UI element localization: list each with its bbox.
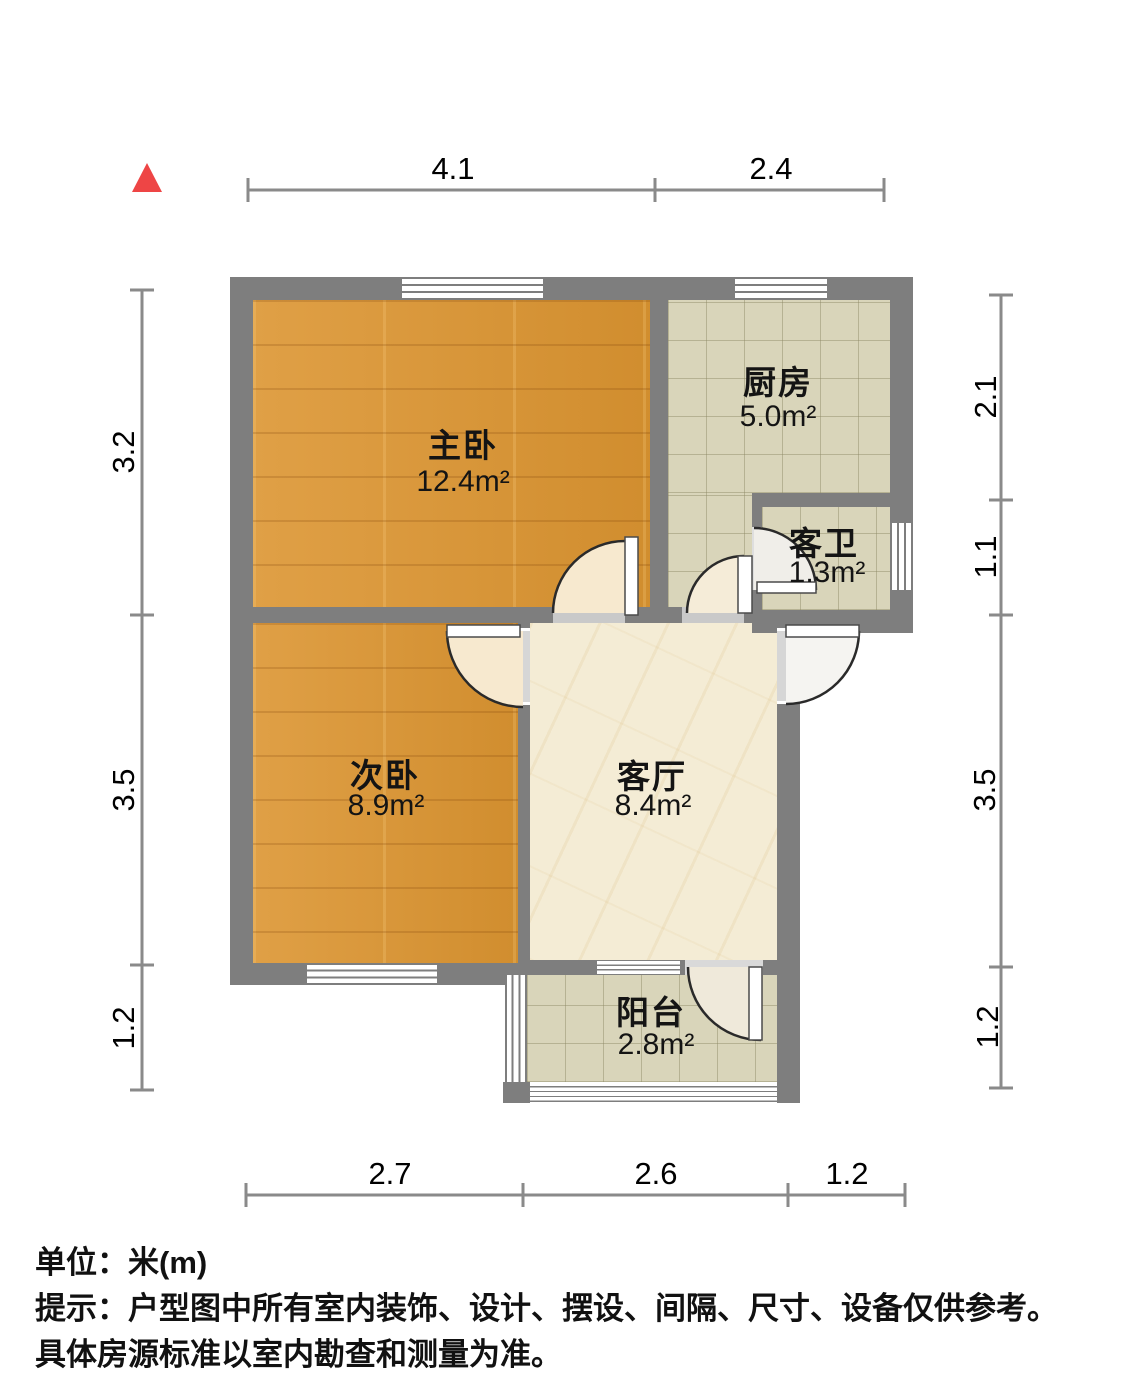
window-master-top: [402, 277, 543, 300]
dim-right-4: 1.2: [970, 1005, 1006, 1048]
wall-master-bottom: [230, 607, 553, 623]
wall-left: [230, 277, 253, 985]
room-area-bathroom: 1.3m²: [789, 556, 866, 590]
dim-right-3: 3.5: [967, 768, 1003, 811]
dim-left-2: 3.5: [106, 768, 142, 811]
dim-top-1: 4.1: [431, 151, 474, 187]
room-area-kitchen: 5.0m²: [740, 400, 817, 434]
room-label-balcony: 阳台: [616, 986, 686, 1034]
footer-notes: 单位：米(m) 提示：户型图中所有室内装饰、设计、摆设、间隔、尺寸、设备仅供参考…: [35, 1240, 1058, 1378]
threshold-bathroom-door: [752, 527, 762, 590]
room-area-balcony: 2.8m²: [618, 1028, 695, 1062]
dim-right-2: 1.1: [968, 535, 1004, 578]
room-label-master-bedroom: 主卧: [428, 419, 498, 467]
wall-balcony-right: [777, 963, 800, 1103]
footer-note-line1: 提示：户型图中所有室内装饰、设计、摆设、间隔、尺寸、设备仅供参考。: [35, 1286, 1058, 1332]
dim-bottom-2: 2.6: [634, 1156, 677, 1192]
window-second-bottom: [307, 963, 437, 985]
wall-bathroom-top: [752, 493, 913, 507]
wall-master-kitchen: [650, 300, 668, 607]
floorplan-canvas: 主卧 12.4m² 厨房 5.0m² 客卫 1.3m² 次卧 8.9m² 客厅 …: [0, 0, 1144, 1384]
dim-left-1: 3.2: [106, 430, 142, 473]
dim-top-2: 2.4: [749, 151, 792, 187]
dim-left-3: 1.2: [106, 1006, 142, 1049]
dimension-line-bottom: [246, 1183, 905, 1207]
window-living-balcony: [597, 960, 680, 975]
room-area-master-bedroom: 12.4m²: [416, 465, 509, 499]
window-bathroom-right: [890, 523, 913, 590]
threshold-balcony-door: [685, 960, 763, 975]
window-balcony-bottom: [530, 1086, 777, 1102]
dim-right-1: 2.1: [968, 375, 1004, 418]
dim-bottom-1: 2.7: [368, 1156, 411, 1192]
window-kitchen-top: [735, 277, 827, 300]
footer-unit-label: 单位：米(m): [35, 1240, 1058, 1286]
threshold-second-bedroom-door: [518, 628, 530, 705]
room-label-kitchen: 厨房: [743, 356, 813, 404]
threshold-master-door: [553, 607, 625, 623]
threshold-entry-door: [777, 628, 800, 704]
window-balcony-left: [505, 975, 527, 1082]
floor-kitchen-lower: [668, 493, 752, 610]
north-triangle-icon: [132, 163, 162, 192]
room-area-living-room: 8.4m²: [615, 789, 692, 823]
wall-balcony-corner: [503, 1082, 530, 1103]
dim-bottom-3: 1.2: [825, 1156, 868, 1192]
dimension-line-left: [130, 290, 154, 1090]
room-area-second-bedroom: 8.9m²: [348, 789, 425, 823]
footer-note-line2: 具体房源标准以室内勘查和测量为准。: [35, 1332, 1058, 1378]
threshold-kitchen-door: [682, 607, 744, 623]
